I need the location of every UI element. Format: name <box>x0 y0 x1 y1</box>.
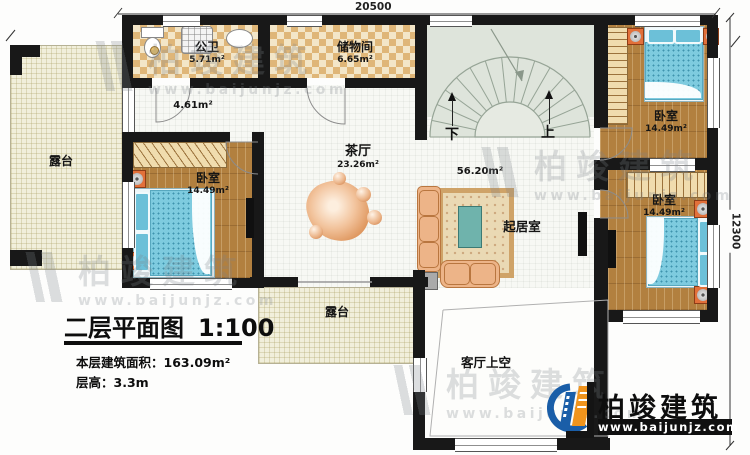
pillow <box>134 232 150 272</box>
wall-segment <box>190 78 307 88</box>
window <box>287 15 322 27</box>
wall-segment <box>415 15 427 140</box>
floor-drain-icon <box>150 46 159 55</box>
window <box>650 158 695 172</box>
wall-corner-block <box>10 250 42 266</box>
room-label-bedroom-left: 卧室 14.49m² <box>176 172 240 196</box>
wall-corner-block <box>10 45 22 75</box>
window <box>707 58 720 128</box>
tv-unit <box>608 230 616 268</box>
floor-area-line: 本层建筑面积：163.09m² <box>76 352 230 371</box>
terrace-bottom-floor <box>258 287 415 364</box>
wall-segment <box>258 15 270 88</box>
window <box>163 15 200 27</box>
pillow <box>134 192 150 232</box>
wall-segment <box>200 15 287 25</box>
sofa-cushion <box>419 216 439 242</box>
brand-logo-icon <box>540 380 596 440</box>
wall-segment <box>250 277 298 287</box>
wall-segment <box>413 270 425 358</box>
dimension-right: 12300 <box>729 210 741 253</box>
wall-segment <box>122 78 152 88</box>
room-label-tea-hall: 茶厅 23.26m² <box>328 145 388 170</box>
window <box>635 15 700 27</box>
floor-height-line: 层高：3.3m <box>76 372 149 391</box>
sofa-cushion <box>419 190 439 216</box>
stair-arrow-line <box>549 98 550 124</box>
window <box>122 88 135 132</box>
window <box>455 438 557 452</box>
wall-segment <box>122 132 230 142</box>
window <box>707 225 720 288</box>
sofa-cushion <box>444 263 470 285</box>
tv-unit <box>246 198 254 238</box>
wall-segment <box>600 310 623 322</box>
wall-segment <box>472 15 635 25</box>
room-label-bath: 公卫 5.71m² <box>177 41 237 65</box>
wall-segment <box>413 438 455 450</box>
wall-segment <box>700 310 718 322</box>
room-label-bedroom-top-right: 卧室 14.49m² <box>634 110 698 134</box>
room-label-void: 客厅上空 <box>452 356 520 370</box>
wall-segment <box>695 158 718 170</box>
room-label-terrace-bottom: 露台 <box>316 306 358 320</box>
stair-arrow-line <box>452 100 453 126</box>
window <box>430 15 472 27</box>
plan-title-text: 二层平面图 <box>64 314 184 342</box>
decorative-sphere <box>356 187 371 202</box>
area-label-hallway: 4.61m² <box>170 100 216 112</box>
plan-scale: 1:100 <box>198 314 274 342</box>
sofa-cushion <box>470 263 496 285</box>
window <box>623 310 700 324</box>
wall-segment <box>122 278 150 288</box>
room-label-living: 起居室 <box>496 220 548 234</box>
decorative-sphere <box>333 172 346 185</box>
window <box>122 182 135 248</box>
dimension-top: 20500 <box>352 1 395 13</box>
stair-label-down: 下 <box>445 124 459 144</box>
pillow <box>647 28 675 44</box>
area-label-center: 56.20m² <box>450 166 510 178</box>
floor-plan: 20500 12300 公卫 5.71m² 储物间 6.65m² 4.61m² … <box>0 0 750 455</box>
wall-segment <box>600 158 650 170</box>
decorative-sphere <box>309 225 323 239</box>
wall-segment <box>707 128 718 225</box>
title-underline <box>64 341 242 345</box>
decorative-sphere <box>367 210 382 225</box>
pillow <box>674 28 702 44</box>
plan-title: 二层平面图1:100 <box>64 308 274 343</box>
stair-label-up: 上 <box>541 122 555 142</box>
room-label-bedroom-bottom-right: 卧室 14.49m² <box>632 194 696 218</box>
tv-unit <box>578 212 587 256</box>
sofa-cushion <box>419 242 439 268</box>
brand-website: www.baijunjz.com <box>598 419 732 435</box>
coffee-table <box>458 206 482 248</box>
wall-segment <box>707 15 718 58</box>
wall-segment <box>322 15 430 25</box>
wardrobe <box>133 142 227 168</box>
wall-segment <box>594 15 608 128</box>
nightstand <box>627 28 644 45</box>
window <box>150 278 232 290</box>
room-label-terrace-left: 露台 <box>40 155 82 169</box>
window <box>413 358 427 392</box>
room-label-storage: 储物间 6.65m² <box>323 41 387 65</box>
